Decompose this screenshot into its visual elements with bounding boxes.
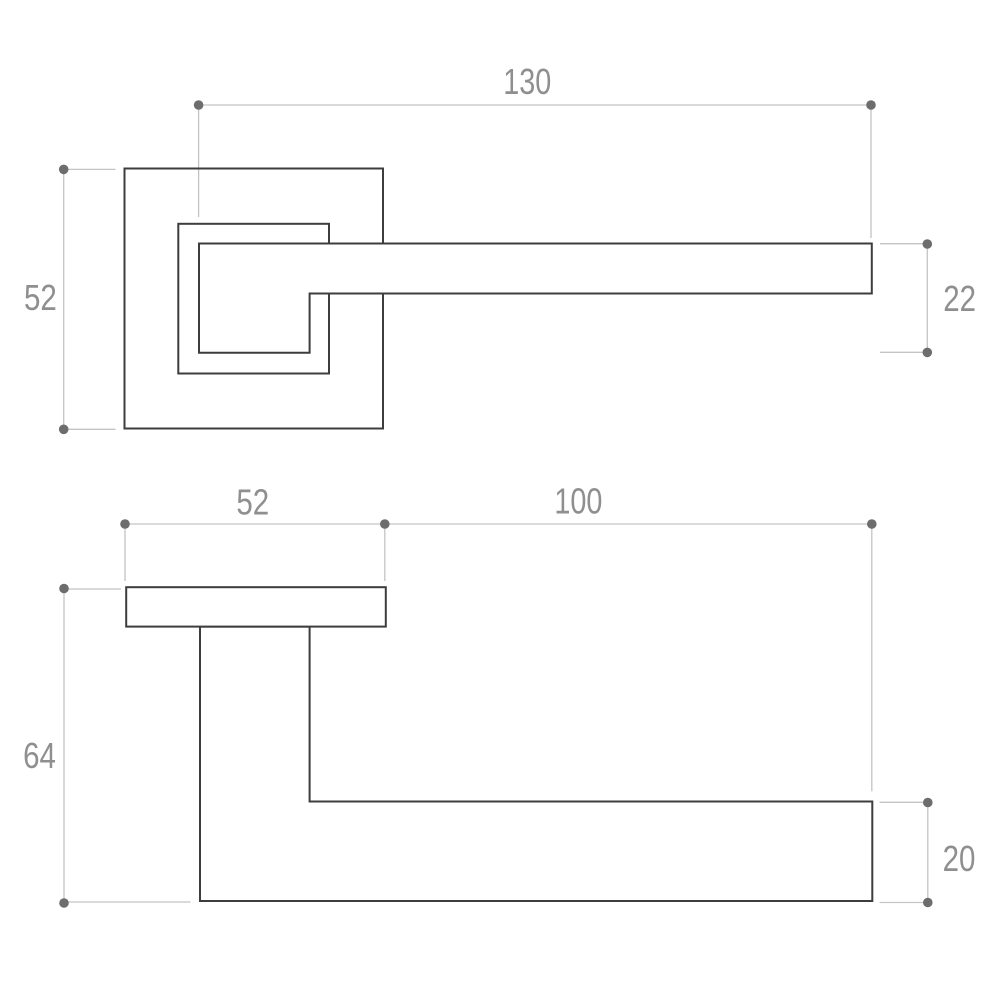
svg-text:130: 130 [503, 61, 551, 102]
svg-text:100: 100 [554, 480, 602, 521]
svg-text:20: 20 [943, 838, 976, 878]
svg-text:52: 52 [24, 277, 57, 317]
svg-text:64: 64 [23, 735, 56, 775]
svg-text:52: 52 [236, 482, 269, 522]
svg-text:22: 22 [943, 278, 976, 318]
